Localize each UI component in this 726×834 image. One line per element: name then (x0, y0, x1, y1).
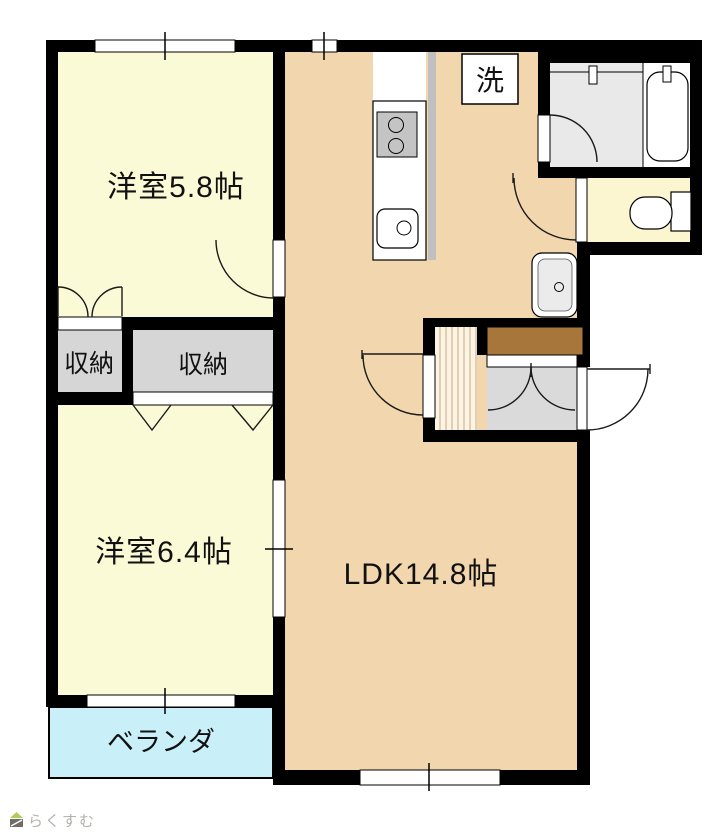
wall-genkan-top (423, 318, 590, 327)
storage-right-door-band (133, 392, 273, 405)
window-bottom-ldk (360, 770, 500, 785)
toilet-bowl (630, 197, 672, 229)
wall-storage-bottom (46, 392, 122, 405)
floorplan-canvas: 洗 洋室5.8帖 洋室6.4帖 LDK14.8帖 収納 収納 ベランダ らくすむ (0, 0, 726, 834)
wall-washbasin (577, 255, 590, 318)
shower-faucet (589, 66, 597, 84)
entrance-door-arc (587, 369, 648, 430)
stove-burner-1 (389, 118, 404, 133)
bathtub-faucet (663, 66, 671, 82)
entrance-door-leaf (577, 367, 587, 430)
ldk-label: LDK14.8帖 (344, 558, 499, 591)
toilet (630, 192, 691, 231)
storage-left-door-band (58, 317, 122, 330)
washbasin (532, 253, 577, 317)
laundry-box: 洗 (462, 54, 518, 104)
storage-left-label: 収納 (64, 350, 114, 378)
stove (377, 112, 417, 157)
watermark: らくすむ (10, 812, 96, 830)
window-bottom-room (87, 695, 235, 707)
watermark-text: らくすむ (28, 813, 96, 830)
shoe-cabinet (487, 327, 583, 355)
sink-drain (397, 221, 411, 235)
room-fills (49, 52, 691, 778)
western-room-top-label: 洋室5.8帖 (107, 171, 245, 204)
genkan-step-band (487, 355, 577, 367)
wall-bathroom-top (550, 52, 702, 63)
toilet-tank (671, 192, 691, 231)
kitchen-counter-upper (373, 52, 426, 101)
wall-toilet-bottom (577, 242, 702, 255)
toilet-door-leaf (576, 178, 587, 242)
kitchen-counter-edge (428, 52, 436, 260)
wall-storage-divider (122, 317, 133, 405)
wall-center-vertical (273, 40, 285, 785)
door-gap-hall (423, 355, 435, 418)
veranda-label: ベランダ (107, 727, 215, 757)
door-gap-bathroom (538, 115, 550, 162)
storage-right-label: 収納 (178, 351, 228, 379)
wall-right-upper (690, 40, 702, 255)
western-room-bottom-label: 洋室6.4帖 (95, 536, 233, 569)
wall-bathroom-bottom (538, 167, 702, 178)
stove-burner-2 (389, 139, 404, 154)
bathtub (647, 72, 688, 161)
wall-genkan-inner (477, 327, 487, 355)
watermark-logo (10, 812, 23, 827)
entrance-hall-floor (435, 327, 477, 431)
door-gap-room-top (273, 240, 285, 297)
wall-left (46, 40, 58, 707)
wall-right-ldk (577, 430, 590, 785)
kitchen-sink (377, 209, 418, 248)
wall-storage-top (122, 317, 273, 330)
floorplan-drawing: 洗 洋室5.8帖 洋室6.4帖 LDK14.8帖 収納 収納 ベランダ らくすむ (0, 0, 726, 834)
wall-genkan-bottom (423, 430, 590, 442)
wall-genkan-right-b (577, 355, 590, 367)
laundry-label: 洗 (476, 65, 504, 96)
